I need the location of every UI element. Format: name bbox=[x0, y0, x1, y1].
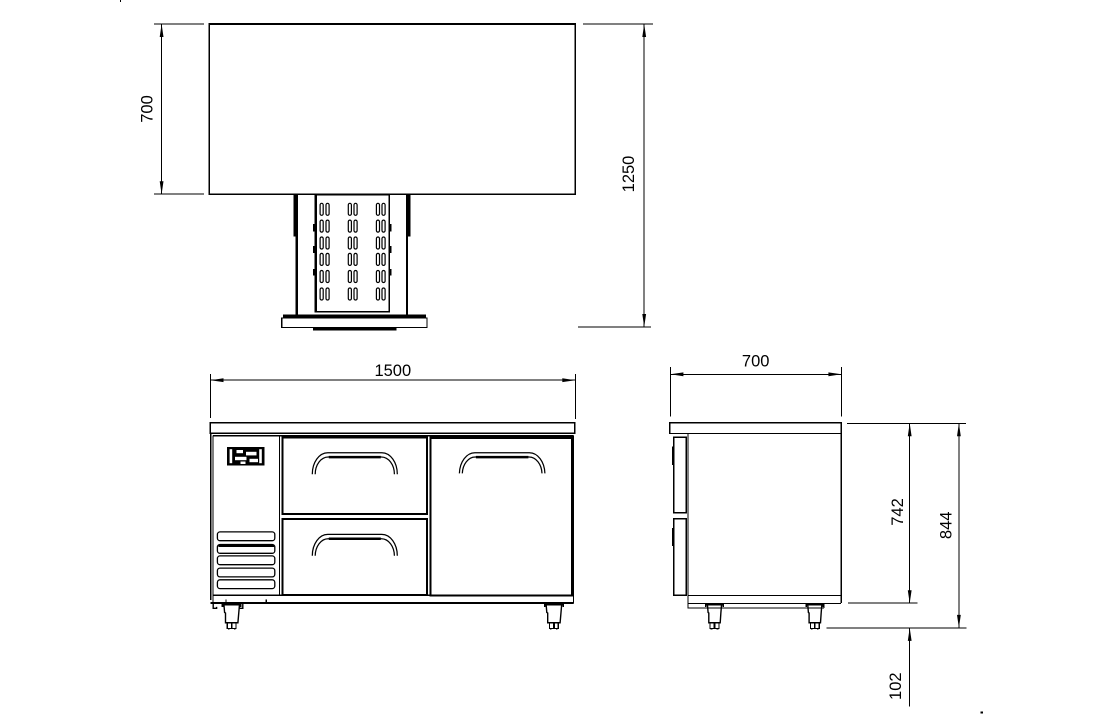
svg-text:844: 844 bbox=[938, 512, 956, 540]
svg-text:700: 700 bbox=[138, 95, 156, 123]
svg-text:700: 700 bbox=[742, 353, 770, 371]
svg-text:742: 742 bbox=[889, 498, 907, 526]
svg-text:1250: 1250 bbox=[620, 156, 638, 193]
svg-text:102: 102 bbox=[887, 672, 905, 700]
svg-text:1500: 1500 bbox=[374, 362, 411, 380]
